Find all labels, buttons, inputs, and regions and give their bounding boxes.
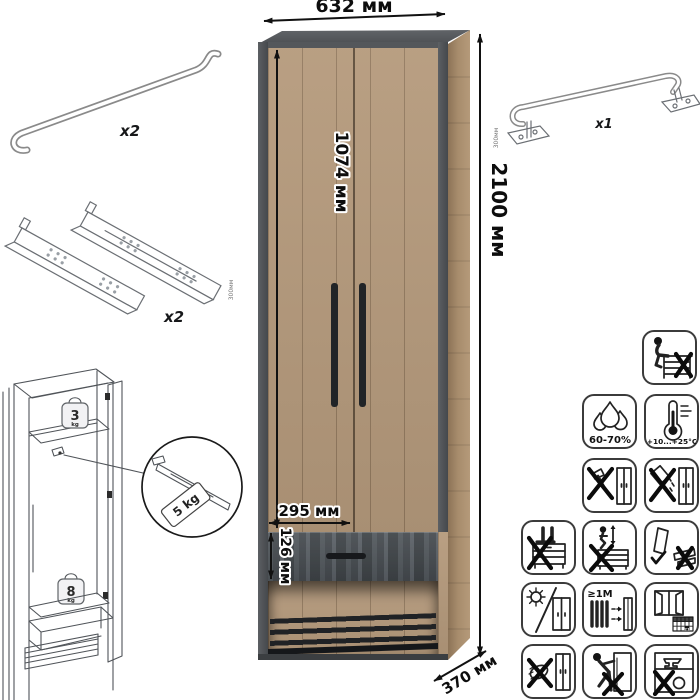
icon-no-jumping: [582, 520, 637, 575]
load-limits-diagram: 3 kg 5 kg: [3, 369, 242, 700]
top-shelf-weight: 3 kg: [62, 398, 88, 428]
icon-no-heavy-objects: [644, 644, 699, 699]
icon-no-impact: [582, 458, 637, 513]
icon-humidity: 60-70%: [582, 394, 637, 449]
wardrobe-front: [258, 42, 448, 660]
dimension-height: 2100 мм: [480, 34, 511, 655]
wardrobe-right-frame: [438, 42, 448, 532]
left-door-handle: [332, 287, 337, 403]
icon-no-pushing: [582, 644, 637, 699]
door-gap: [353, 48, 355, 532]
wardrobe-plinth: [258, 654, 448, 660]
wardrobe-open-niche: [268, 581, 438, 654]
ventilate-day-label: 21: [684, 626, 690, 631]
wardrobe-doors: [268, 48, 438, 532]
icon-no-liquids: [644, 458, 699, 513]
wardrobe-right-frame-lower: [438, 532, 448, 654]
icon-ventilate-room: 21: [644, 582, 699, 637]
radiator-distance-label: ≥1М: [587, 589, 612, 600]
icon-no-standing: [521, 520, 576, 575]
svg-text:3: 3: [70, 409, 79, 424]
wardrobe-drawer: [268, 532, 438, 584]
icon-radiator-distance: ≥1М: [582, 582, 637, 637]
hanging-rail-size: 300мм: [493, 128, 500, 149]
icon-temperature: +10...+25°C: [644, 394, 699, 449]
drawer-slides-size: 300мм: [228, 280, 235, 301]
dimension-width: 632 мм: [264, 0, 445, 21]
svg-text:8: 8: [66, 585, 75, 600]
product-diagram: 632 мм 2100 мм 1074 мм 295 мм 126 мм 370…: [0, 0, 700, 700]
handle-rail-drawing: x2: [14, 53, 218, 150]
wardrobe-left-frame: [258, 42, 268, 654]
icon-no-direct-sunlight: [521, 582, 576, 637]
svg-text:kg: kg: [67, 598, 75, 604]
icon-carry-panels-upright: [644, 520, 699, 575]
icon-no-abrasive-cleaning: [521, 644, 576, 699]
drawer-slides-qty: x2: [163, 308, 184, 326]
svg-text:2100 мм: 2100 мм: [487, 162, 511, 257]
hanging-rail-qty: x1: [594, 117, 612, 132]
drawer-handle: [326, 553, 366, 559]
drawer-shelf-weight: 8 kg: [58, 574, 84, 604]
rail-load-label: 5 kg: [170, 491, 202, 520]
rail-callout: 5 kg: [152, 456, 230, 528]
wardrobe-side-panel: [448, 30, 470, 662]
drawer-slides-drawing: x2 300мм: [5, 200, 235, 326]
handle-rail-qty: x2: [119, 122, 140, 140]
hanging-rail-drawing: x1 300мм: [493, 76, 700, 149]
right-door-handle: [360, 287, 365, 403]
temperature-label: +10...+25°C: [648, 437, 696, 446]
icon-no-sitting: [642, 330, 697, 385]
humidity-label: 60-70%: [588, 435, 630, 446]
svg-text:kg: kg: [71, 422, 79, 428]
svg-text:632 мм: 632 мм: [315, 0, 392, 17]
